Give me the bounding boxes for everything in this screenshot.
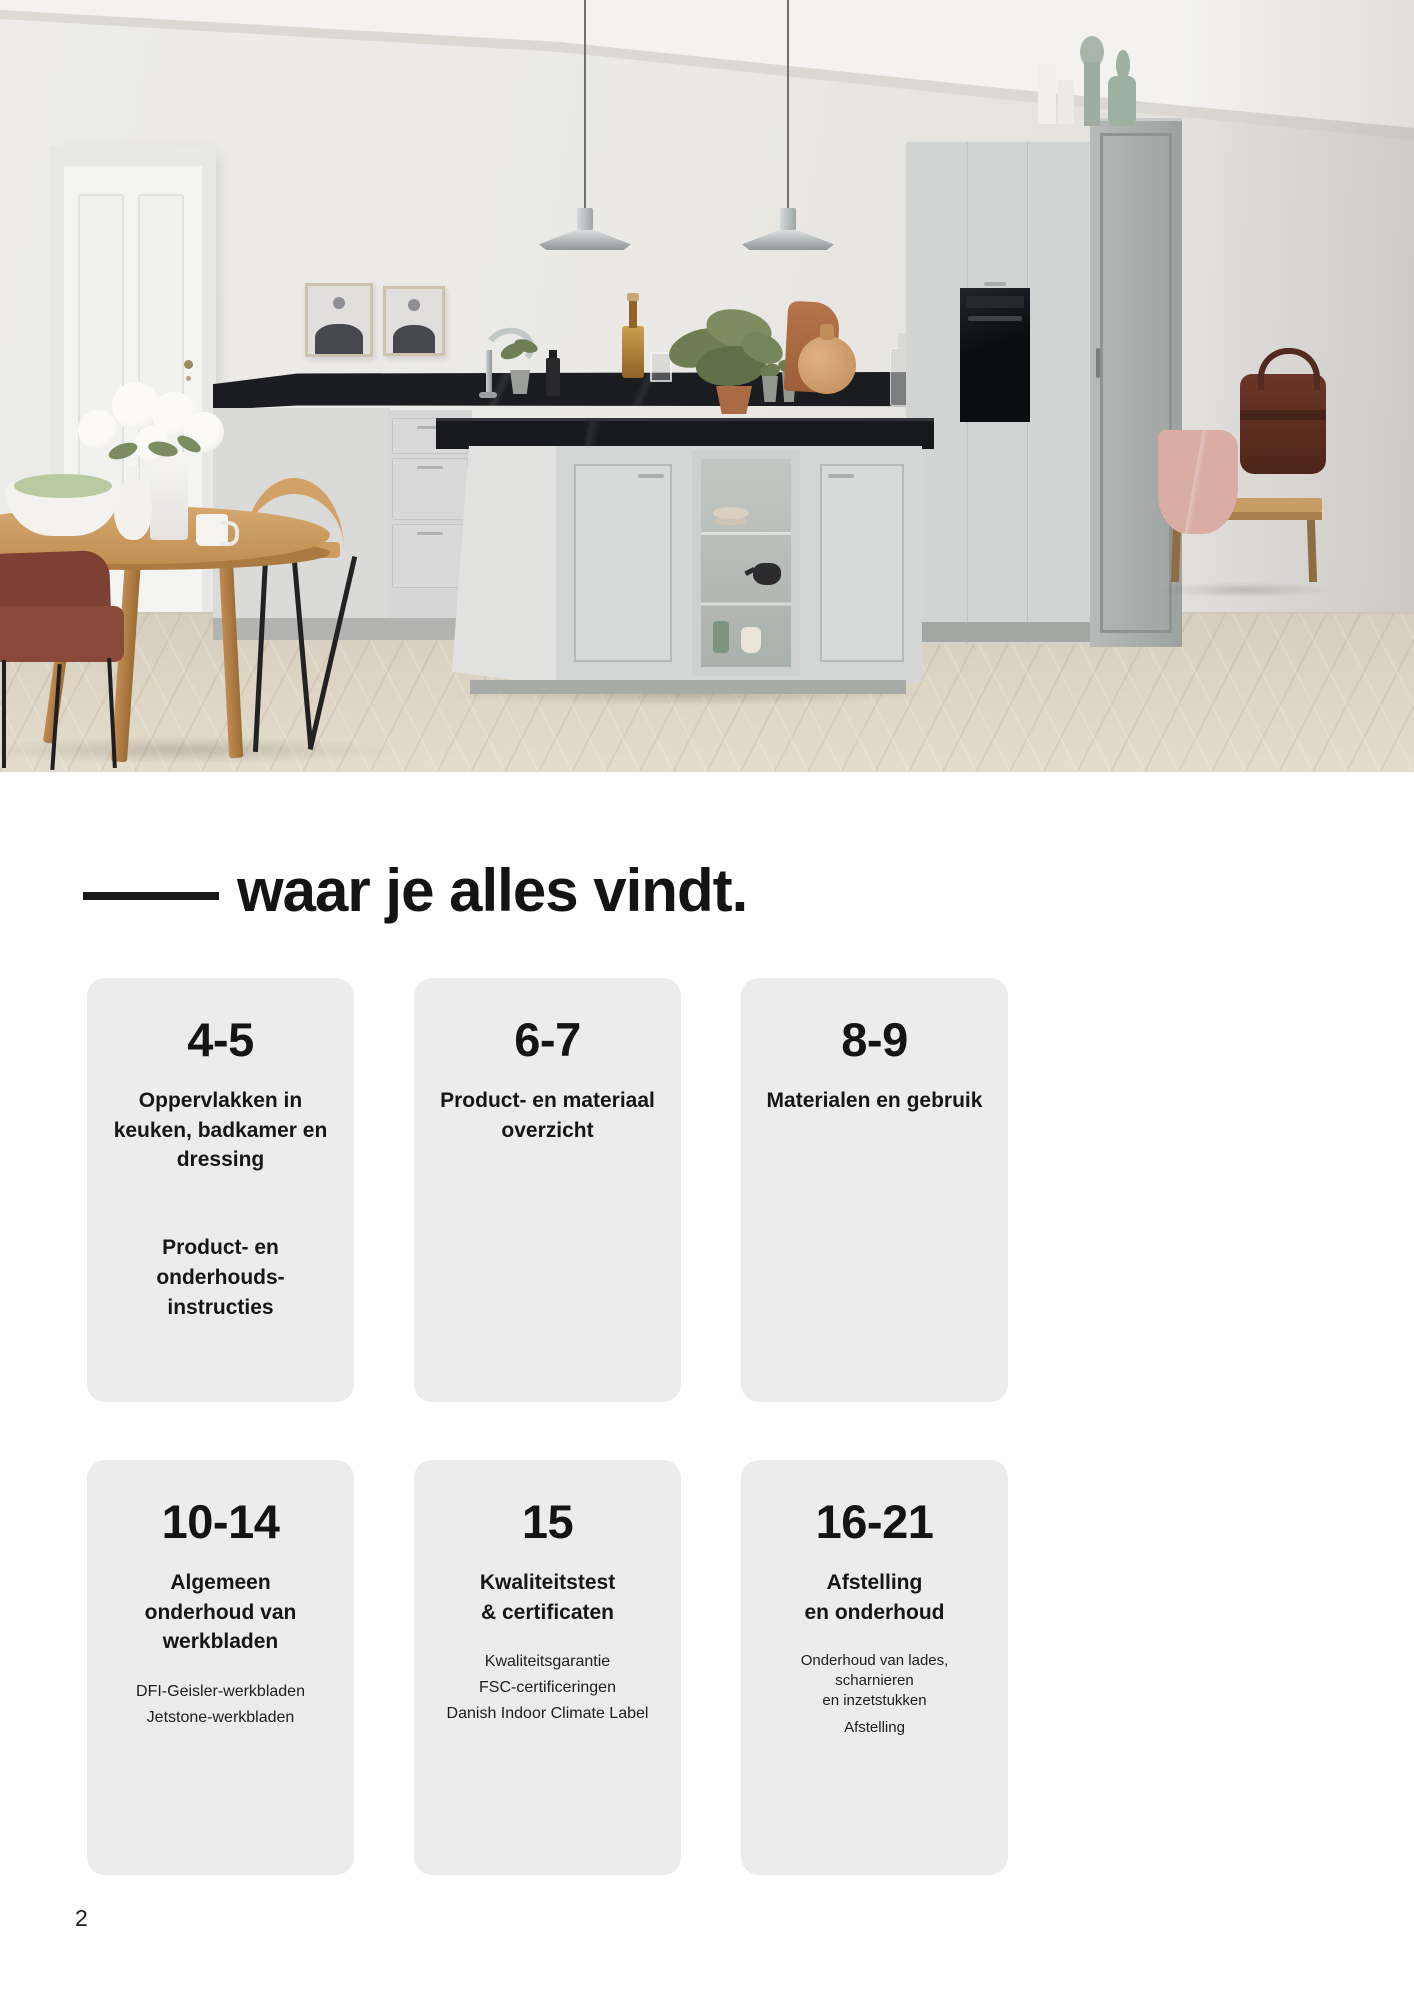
faucet-pipe [486,350,492,396]
sage-vase-body [1108,76,1136,126]
door-handle [184,360,193,369]
toc-item: DFI-Geisler-werkbladen [107,1681,334,1704]
title-line: & certificaten [434,1598,661,1628]
white-flowers [78,382,230,478]
teapot [753,563,781,585]
toc-items: DFI-Geisler-werkbladen Jetstone-werkblad… [107,1681,334,1729]
title-line: dressing [107,1145,334,1175]
title-line: Oppervlakken in [107,1086,334,1116]
oil-bottle [622,326,644,378]
title-line: instructies [107,1293,334,1323]
item-line: DFI-Geisler-werkbladen [107,1681,334,1704]
toc-items: Kwaliteitsgarantie FSC-certificeringen D… [434,1651,661,1725]
title-line: keuken, badkamer en [107,1116,334,1146]
toc-item: Afstelling [761,1718,988,1738]
door-handle [828,474,854,478]
toc-title: Oppervlakken in keuken, badkamer en dres… [107,1086,334,1175]
drawer-front [392,524,468,588]
page-title: waar je alles vindt. [237,852,747,930]
built-in-oven [960,288,1030,422]
toc-title: Algemeen onderhoud van werkbladen [107,1568,334,1657]
toc-pages: 8-9 [761,1014,988,1066]
wall-shadow-right [1180,0,1414,655]
title-line: Product- en materiaal [434,1086,661,1116]
faucet-base [479,392,497,398]
toc-card-10-14[interactable]: 10-14 Algemeen onderhoud van werkbladen … [87,1460,354,1875]
toc-pages: 4-5 [107,1014,334,1066]
title-line: overzicht [434,1116,661,1146]
small-plant-pot [510,370,530,394]
pendant-lamp-cord [787,0,789,208]
section-heading: waar je alles vindt. [83,852,747,930]
toc-card-15[interactable]: 15 Kwaliteitstest & certificaten Kwalite… [414,1460,681,1875]
item-line: Danish Indoor Climate Label [434,1703,661,1726]
soap-dispenser [546,358,560,396]
toc-pages: 15 [434,1496,661,1548]
chair-leg [2,660,6,768]
round-cutting-board [798,336,856,394]
toc-pages: 6-7 [434,1014,661,1066]
door-handle [638,474,664,478]
item-line: Afstelling [761,1718,988,1738]
toc-grid: 4-5 Oppervlakken in keuken, badkamer en … [87,978,1008,1875]
toc-pages: 10-14 [107,1496,334,1548]
pink-garment [1158,430,1238,534]
title-line: Materialen en gebruik [761,1086,988,1116]
burgundy-chair-seat [0,606,124,662]
leather-bag [1240,374,1326,474]
island-plinth [470,680,906,694]
toc-card-16-21[interactable]: 16-21 Afstelling en onderhoud Onderhoud … [741,1460,1008,1875]
toc-title: Product- en materiaal overzicht [434,1086,661,1146]
drawer-front [392,458,468,520]
title-line: en onderhoud [761,1598,988,1628]
framed-picture-2 [383,286,445,356]
herb-sprig [498,338,540,374]
cabinet-handle [1096,348,1100,378]
mug [196,514,228,546]
island-countertop [436,418,934,449]
toc-item: Kwaliteitsgarantie [434,1651,661,1674]
toc-item: Jetstone-werkbladen [107,1707,334,1730]
green-vase [713,621,729,653]
toc-items: Onderhoud van lades, scharnieren en inze… [761,1651,988,1737]
sage-vase-body [1084,62,1100,126]
hero-photo [0,0,1414,772]
pendant-lamp-stem [577,208,593,230]
heading-dash [83,892,219,900]
title-line: Algemeen [107,1568,334,1598]
title-line: Kwaliteitstest [434,1568,661,1598]
white-vase [1038,64,1056,124]
tall-grey-cabinet [1090,118,1182,647]
toc-card-4-5[interactable]: 4-5 Oppervlakken in keuken, badkamer en … [87,978,354,1402]
toc-title: Materialen en gebruik [761,1086,988,1116]
pendant-lamp-cord [584,0,586,208]
toc-item: FSC-certificeringen [434,1677,661,1700]
title-line: werkbladen [107,1627,334,1657]
island-end-panel [452,446,558,686]
item-line: FSC-certificeringen [434,1677,661,1700]
round-white-vase [114,478,152,540]
item-line: Onderhoud van lades, scharnieren [761,1651,988,1691]
toc-pages: 16-21 [761,1496,988,1548]
title-line: onderhoud van [107,1598,334,1628]
island-glass-cabinet [692,450,800,676]
toc-item: Danish Indoor Climate Label [434,1703,661,1726]
title-line: Product- en onderhouds- [107,1233,334,1293]
island-door-right [806,450,918,676]
item-line: Kwaliteitsgarantie [434,1651,661,1674]
white-vase [1058,80,1074,124]
table-shadow [0,736,400,764]
framed-picture-1 [305,283,373,357]
pendant-lamp-stem [780,208,796,230]
toc-item: Onderhoud van lades, scharnieren en inze… [761,1651,988,1710]
page-number: 2 [75,1905,88,1932]
flower [78,410,118,450]
title-line: Afstelling [761,1568,988,1598]
toc-secondary-title: Product- en onderhouds- instructies [107,1233,334,1322]
toc-card-8-9[interactable]: 8-9 Materialen en gebruik [741,978,1008,1402]
bench-shadow [1156,582,1332,598]
toc-title: Kwaliteitstest & certificaten [434,1568,661,1628]
item-line: en inzetstukken [761,1691,988,1711]
herb-pot [762,376,778,402]
jug [741,627,761,653]
bowls [713,507,749,519]
item-line: Jetstone-werkbladen [107,1707,334,1730]
toc-title: Afstelling en onderhoud [761,1568,988,1628]
brochure-page: waar je alles vindt. 4-5 Oppervlakken in… [0,0,1414,2000]
cabinet-plinth [213,618,473,640]
terracotta-pot [716,386,752,414]
toc-card-6-7[interactable]: 6-7 Product- en materiaal overzicht [414,978,681,1402]
island-door-left [560,450,686,676]
